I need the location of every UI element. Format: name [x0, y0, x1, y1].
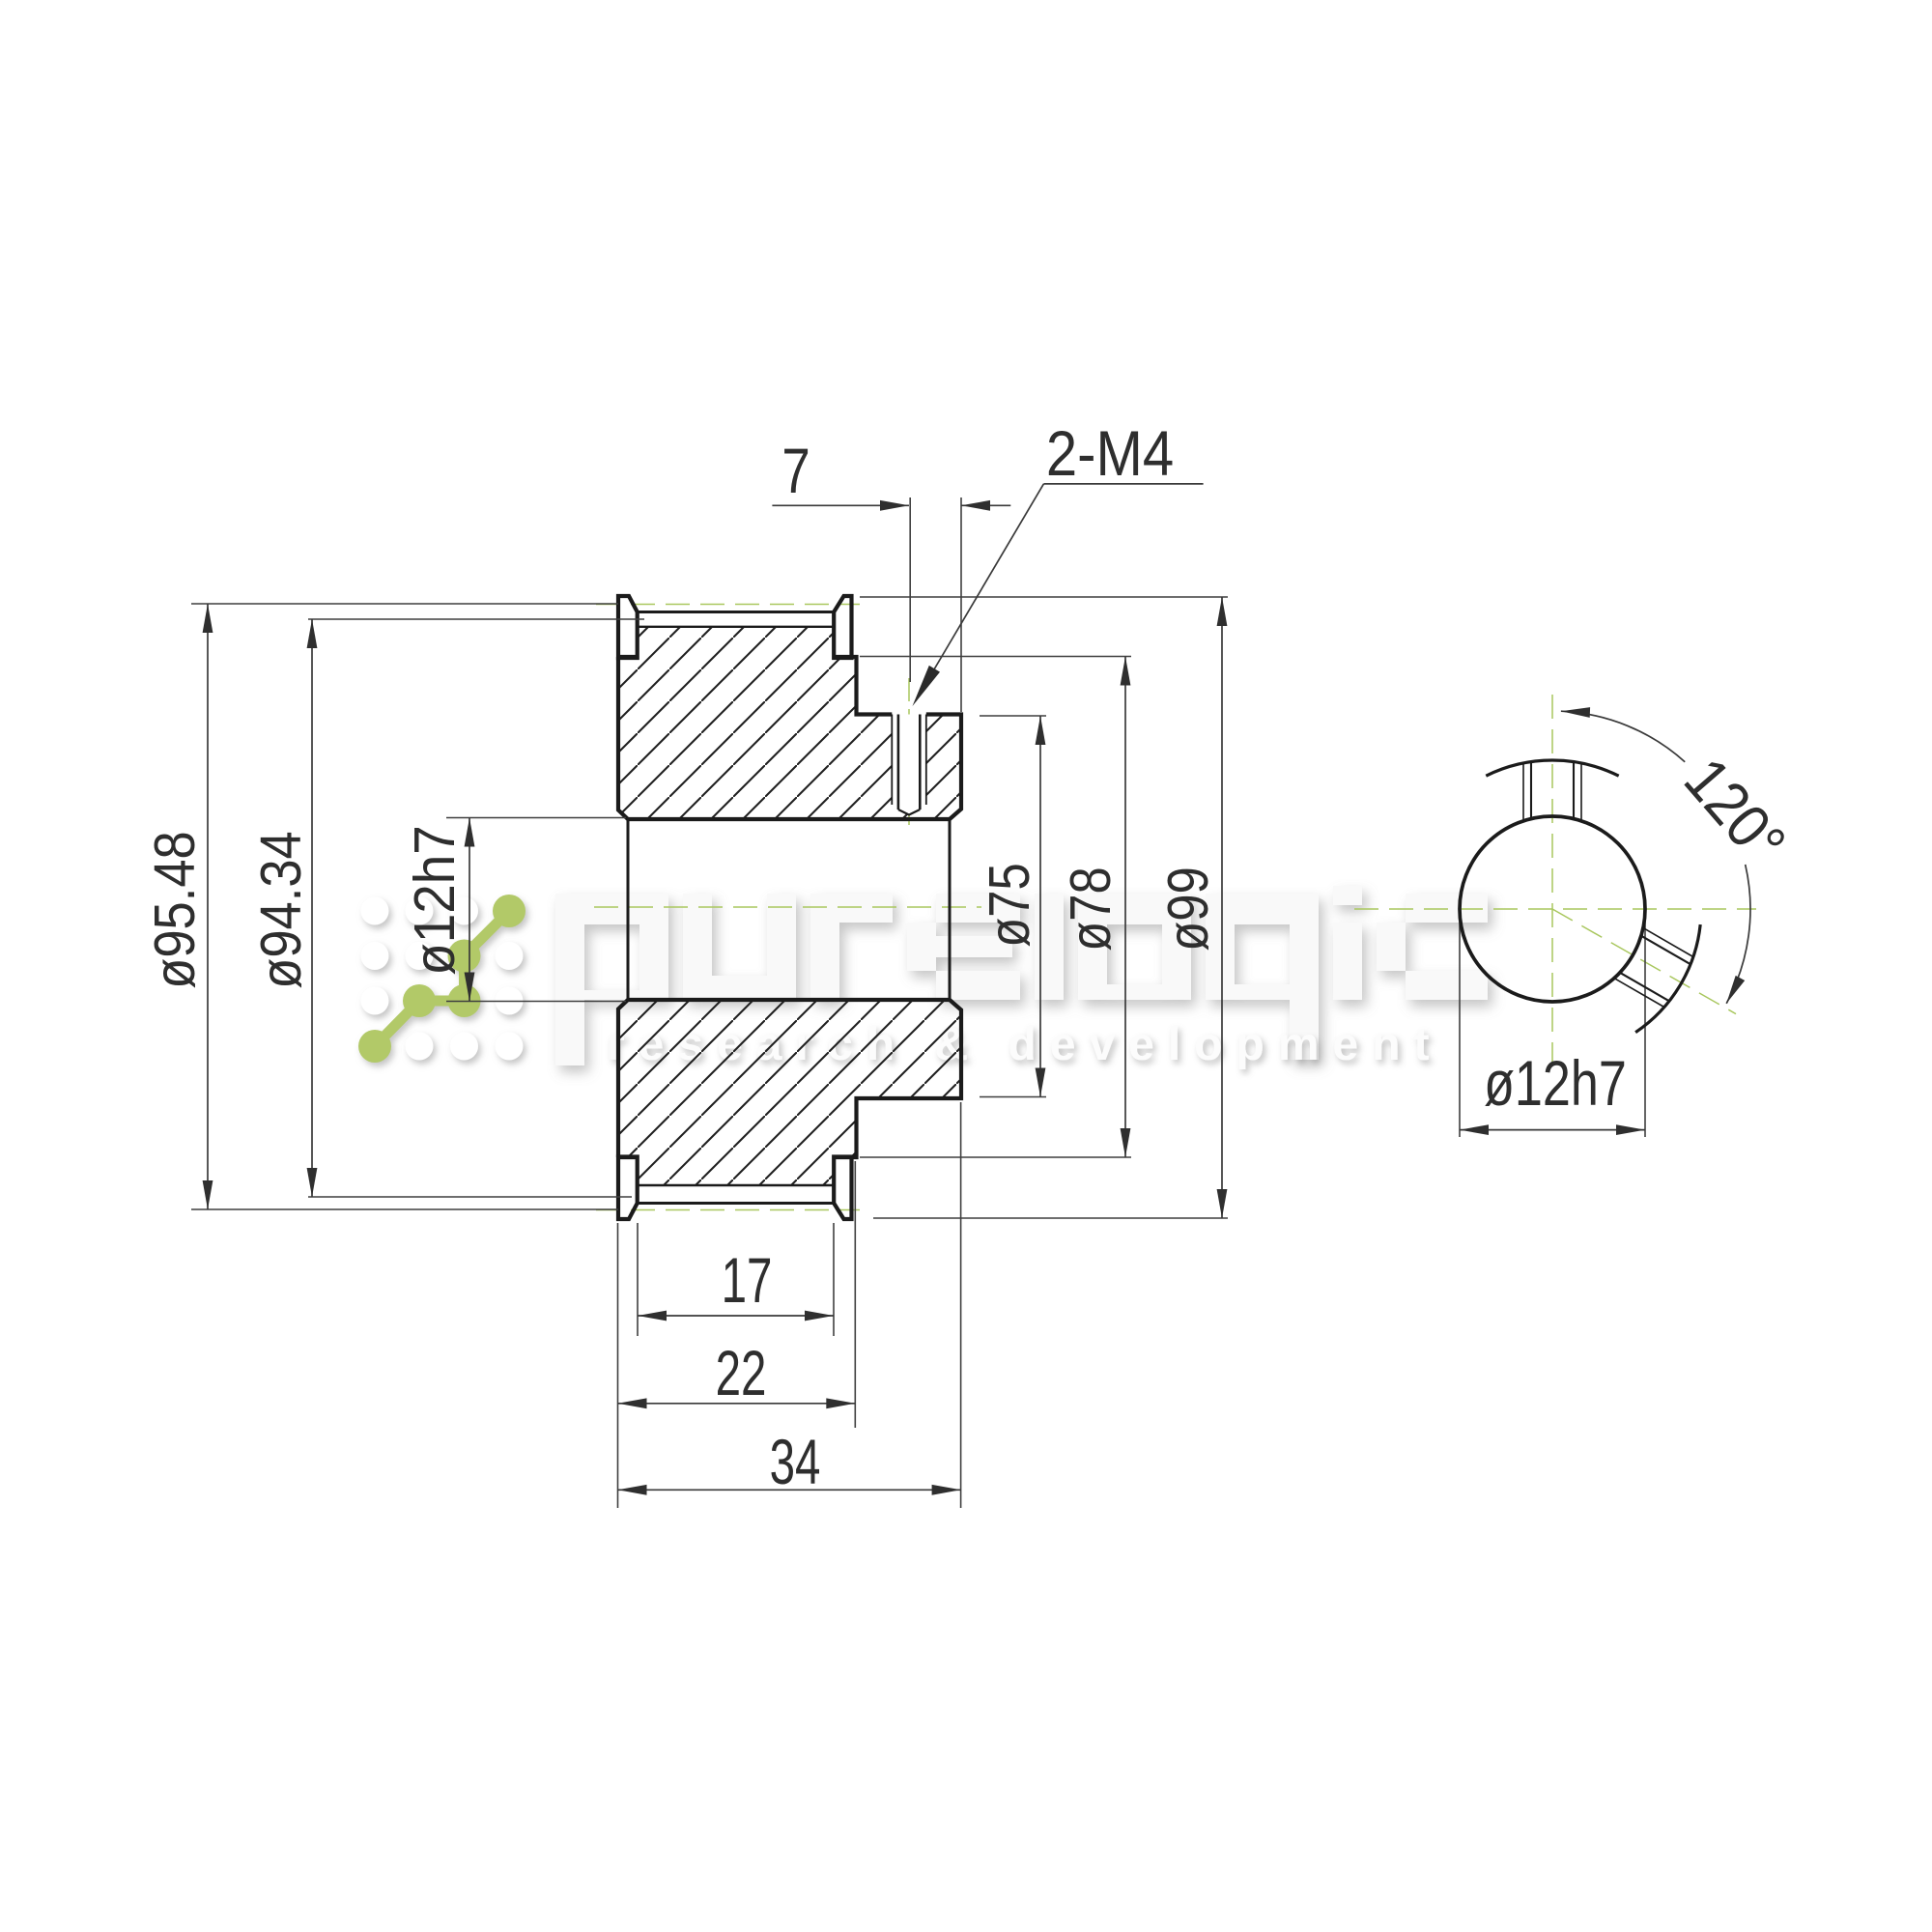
svg-text:ø99: ø99 [1155, 867, 1219, 951]
svg-text:ø12h7: ø12h7 [403, 825, 467, 976]
svg-text:22: 22 [716, 1338, 767, 1408]
svg-text:34: 34 [770, 1427, 821, 1497]
svg-text:ø95.48: ø95.48 [142, 831, 207, 988]
svg-text:7: 7 [781, 435, 810, 506]
svg-text:ø75: ø75 [977, 863, 1040, 947]
svg-text:2-M4: 2-M4 [1046, 419, 1174, 490]
svg-text:ø94.34: ø94.34 [248, 831, 313, 988]
svg-text:ø12h7: ø12h7 [1484, 1047, 1627, 1119]
svg-text:ø78: ø78 [1058, 867, 1122, 951]
svg-text:17: 17 [722, 1245, 773, 1316]
